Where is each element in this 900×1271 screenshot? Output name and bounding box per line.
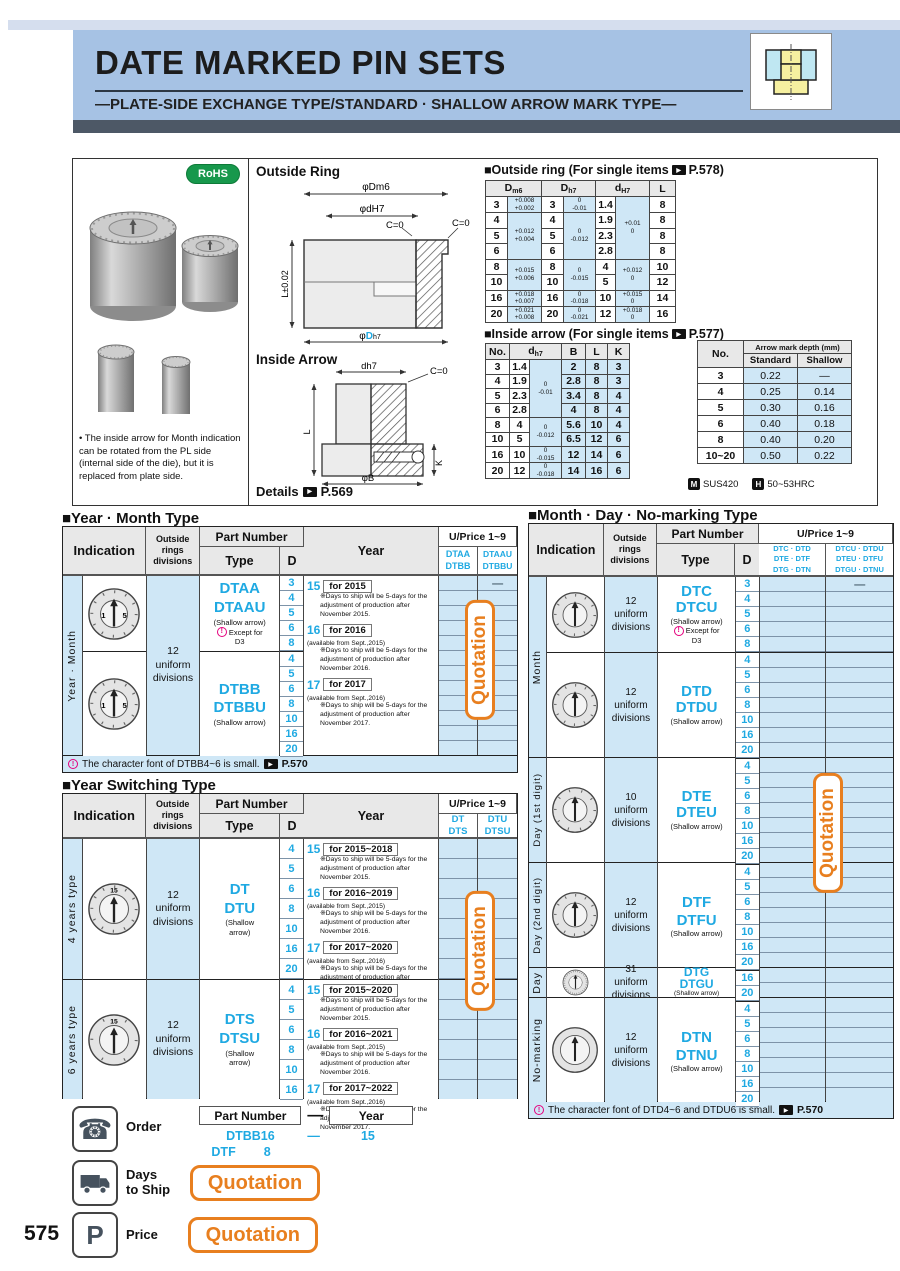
days-to-ship-row: Daysto Ship Quotation (72, 1160, 320, 1206)
d-value: 5 (280, 667, 303, 682)
details-page: P.569 (321, 484, 353, 499)
details-ref: Details ▶ P.569 (256, 484, 353, 499)
dim-ia-k: K (434, 460, 444, 466)
d-value: 3 (736, 577, 759, 592)
depth-row: 60.400.18 (698, 416, 852, 432)
dim-dm6: φDm6 (362, 182, 390, 193)
no-product-dash: — (478, 576, 517, 591)
d-value: 4 (736, 653, 759, 668)
no-product-dash: — (826, 577, 893, 592)
col-part-number: Part Number (200, 527, 304, 547)
d-value: 16 (736, 971, 759, 986)
year-switching-title: ■Year Switching Type (62, 777, 216, 794)
d-value: 4 (736, 759, 759, 774)
type-dts: DTSDTSU (Shallowarrow) (200, 979, 279, 1099)
d-value: 8 (736, 637, 759, 652)
page-ref-icon: ▶ (264, 759, 278, 769)
d-value: 10 (736, 1062, 759, 1077)
svg-text:15: 15 (111, 888, 119, 895)
outside-ring-label: Outside Ring (256, 164, 340, 179)
depth-row: 50.300.16 (698, 400, 852, 416)
svg-text:5: 5 (123, 701, 128, 710)
details-label: Details (256, 484, 299, 499)
d-value: 5 (280, 859, 303, 879)
d-value: 10 (736, 819, 759, 834)
dim-c0-b: C=0 (452, 218, 470, 229)
dim-l-tol: L±0.02 (280, 270, 290, 297)
type-dte: DTEDTEU (Shallow arrow) (658, 757, 735, 862)
svg-text:1: 1 (102, 701, 107, 710)
dim-ia-c0: C=0 (430, 366, 448, 377)
svg-text:5: 5 (123, 610, 128, 619)
d-value: 4 (736, 1002, 759, 1017)
material-note: MSUS420 H50~53HRC (688, 478, 815, 490)
d-value: 16 (736, 1077, 759, 1092)
year-entry: 17for 2017(available from Sept.,2016) ※D… (307, 678, 436, 728)
month-dial: 1 5 (83, 651, 146, 756)
dtc-dial (547, 577, 604, 652)
photo-note: • The inside arrow for Month indication … (79, 433, 245, 483)
phone-icon: ☎ (72, 1106, 118, 1152)
d-value: 10 (736, 713, 759, 728)
dim-ia-l: L (302, 429, 312, 434)
d-value: 20 (736, 986, 759, 1001)
page-number: 575 (24, 1222, 59, 1246)
price-row: P Price Quotation (72, 1212, 318, 1258)
dtn-dial (547, 997, 604, 1102)
dtg-dial (547, 967, 604, 997)
example-part-number: DTF (211, 1145, 235, 1159)
col-uprice: U/Price 1~9 (439, 527, 517, 547)
quotation-stamp: Quotation (810, 771, 846, 895)
pin-section-icon (750, 33, 832, 110)
d-value: 4 (736, 865, 759, 880)
year-entry: 16for 2016(available from Sept.,2015) ※D… (307, 623, 436, 673)
quotation-stamp: Quotation (462, 871, 498, 1031)
d-value: 6 (280, 621, 303, 636)
d-value: 5 (736, 774, 759, 789)
depth-row: 10~200.500.22 (698, 448, 852, 464)
order-row: ☎ Order Part Number — Year DTBB16 — 15 D… (72, 1106, 413, 1159)
d-value: 4 (736, 592, 759, 607)
d-value: 5 (736, 1017, 759, 1032)
col-price-2: DTCU · DTDUDTEU · DTFUDTGU · DTNU (826, 544, 893, 576)
d-value: 4 (280, 980, 303, 1000)
year-month-title: ■Year · Month Type (62, 510, 199, 527)
year-box: Year (329, 1106, 413, 1125)
example-year: 15 (326, 1129, 410, 1143)
d-value: 6 (736, 683, 759, 698)
d-value: 20 (736, 955, 759, 970)
caution-icon: ! (217, 627, 227, 637)
4years-dial: 15 (83, 839, 146, 979)
d-value: 10 (736, 925, 759, 940)
d-value: 8 (736, 1047, 759, 1062)
depth-row: 40.250.14 (698, 384, 852, 400)
d-value: 20 (280, 959, 303, 979)
svg-text:1: 1 (102, 610, 107, 619)
side-label-year-month: Year · Month (63, 576, 83, 755)
caution-icon: ! (674, 626, 684, 636)
d-value: 8 (736, 804, 759, 819)
d-value: 8 (280, 1040, 303, 1060)
caution-icon: ! (534, 1105, 544, 1115)
type-dtn: DTNDTNU (Shallow arrow) (658, 997, 735, 1102)
price-label: Price (126, 1228, 158, 1243)
days-to-ship-label: Daysto Ship (126, 1168, 170, 1198)
d-column: 34568 4568101620 4568101620 4568101620 1… (736, 577, 760, 1101)
col-year: Year (304, 527, 439, 575)
dim-c0-a: C=0 (386, 220, 404, 231)
material-m-icon: M (688, 478, 700, 490)
svg-text:15: 15 (111, 1018, 119, 1025)
dtf-dial (547, 862, 604, 967)
inside-arrow-table-title: ■Inside arrow (For single items ▶ P.577) (484, 327, 724, 341)
month-day-title: ■Month · Day · No-marking Type (528, 507, 758, 524)
d-value: 6 (736, 895, 759, 910)
d-value: 4 (280, 652, 303, 667)
inside-arrow-diagram: dh7 C=0 L K φB (256, 360, 478, 491)
type-dt: DTDTU (Shallowarrow) (200, 839, 279, 979)
d-value: 16 (280, 727, 303, 742)
d-value: 6 (280, 1020, 303, 1040)
outside-ring-table: Dm6 Dh7 dH7 L 3+0.008+0.002 30-0.01 1.4+… (485, 180, 676, 323)
catalog-page: DATE MARKED PIN SETS —PLATE-SIDE EXCHANG… (0, 0, 900, 1271)
d-value: 20 (736, 1092, 759, 1107)
d-value: 4 (280, 591, 303, 606)
d-value: 4 (280, 839, 303, 859)
example-part-number: DTBB16 (199, 1129, 301, 1143)
d-value: 20 (736, 743, 759, 758)
page-ref-icon: ▶ (779, 1105, 793, 1115)
hardness-h-icon: H (752, 478, 764, 490)
d-value: 8 (736, 698, 759, 713)
dim-dh7-small: φdH7 (360, 204, 385, 215)
d-value: 6 (280, 879, 303, 899)
type-dtc: DTCDTCU (Shallow arrow) !Except for D3 (658, 577, 735, 652)
outside-ring-table-title: ■Outside ring (For single items ▶ P.578) (484, 163, 724, 177)
side-label-4years: 4 years type (63, 839, 82, 979)
rings-divisions: 12uniformdivisions (147, 576, 201, 755)
page-ref-icon: ▶ (303, 487, 317, 497)
d-value: 20 (280, 742, 303, 757)
year-entry: 15for 2015 ※Days to ship will be 5-days … (307, 579, 436, 619)
d-value: 8 (280, 697, 303, 712)
dim-ia-dh7: dh7 (361, 361, 377, 372)
col-d: D (280, 547, 304, 575)
col-rings: Outsideringsdivisions (146, 527, 200, 575)
year-info-4years: 15for 2015~2018※Days to ship will be 5-d… (304, 839, 438, 979)
d-value: 6 (736, 789, 759, 804)
d-value: 16 (736, 834, 759, 849)
d-column: 4568101620 45681016 (280, 839, 304, 1098)
6years-dial: 15 (83, 979, 146, 1099)
d-value: 5 (280, 606, 303, 621)
side-label-nomarking: No-marking (529, 997, 546, 1102)
year-month-table: Indication Outsideringsdivisions Part Nu… (62, 526, 518, 773)
type-dtbb: DTBB DTBBU (Shallow arrow) (200, 651, 279, 756)
arrow-mark-depth-table: No.Arrow mark depth (mm) StandardShallow… (697, 340, 852, 464)
type-dtf: DTFDTFU (Shallow arrow) (658, 862, 735, 967)
d-value: 16 (736, 940, 759, 955)
d-value: 6 (736, 1032, 759, 1047)
dte-dial (547, 757, 604, 862)
part-number-box: Part Number (199, 1106, 301, 1125)
side-label-6years: 6 years type (63, 979, 82, 1099)
side-label-day: Day (529, 967, 546, 997)
product-photo (78, 180, 242, 430)
price-p-icon: P (72, 1212, 118, 1258)
d-value: 6 (280, 682, 303, 697)
type-dtaa: DTAA DTAAU (Shallow arrow) !Except for D… (200, 576, 279, 651)
dim-dh7-big: φDh7 (359, 331, 381, 342)
col-price-2: DTAAUDTBBU (478, 547, 517, 575)
year-dial: 1 5 (83, 576, 146, 651)
side-label-month: Month (529, 577, 546, 757)
caution-icon: ! (68, 759, 78, 769)
type-dtd: DTDDTDU (Shallow arrow) (658, 652, 735, 757)
d-value: 8 (736, 910, 759, 925)
year-switching-table: Indication Outsideringsdivisions Part Nu… (62, 793, 518, 1099)
year-info-6years: 15for 2015~2020※Days to ship will be 5-d… (304, 979, 438, 1099)
dim-ia-b: φB (362, 473, 375, 484)
d-value: 10 (280, 712, 303, 727)
side-label-day2: Day (2nd digit) (529, 862, 546, 967)
header-top-strip (8, 20, 900, 30)
d-value: 8 (280, 636, 303, 651)
d-value: 10 (280, 919, 303, 939)
d-value: 16 (280, 939, 303, 959)
col-price-1: DTAADTBB (439, 547, 478, 575)
d-value: 16 (736, 728, 759, 743)
inside-arrow-table: No. dh7 BLK 31.4 0-0.01 283 41.92.883 52… (485, 343, 630, 479)
col-price-1: DTC · DTDDTE · DTFDTG · DTN (759, 544, 826, 576)
d-value: 5 (736, 880, 759, 895)
d-value: 3 (280, 576, 303, 591)
d-value: 5 (280, 1000, 303, 1020)
d-value: 10 (280, 1060, 303, 1080)
d-value: 6 (736, 622, 759, 637)
type-dtg: DTGDTGU (Shallow arrow) (658, 967, 735, 997)
d-value: 20 (736, 849, 759, 864)
page-subtitle: —PLATE-SIDE EXCHANGE TYPE/STANDARD · SHA… (95, 96, 676, 113)
year-info: 15for 2015 ※Days to ship will be 5-days … (304, 576, 439, 755)
side-label-day1: Day (1st digit) (529, 757, 546, 862)
d-value: 5 (736, 607, 759, 622)
d-value: 5 (736, 668, 759, 683)
col-type: Type (200, 547, 280, 575)
photo-divider (248, 158, 249, 506)
d-value: 16 (280, 1080, 303, 1100)
quotation-stamp: Quotation (190, 1165, 320, 1201)
order-label: Order (126, 1120, 161, 1135)
page-ref-icon: ▶ (672, 165, 686, 175)
page-ref-icon: ▶ (672, 329, 686, 339)
col-indication: Indication (63, 527, 146, 575)
ym-footnote: ! The character font of DTBB4~6 is small… (63, 755, 517, 772)
dtd-dial (547, 652, 604, 757)
d-value: 8 (280, 899, 303, 919)
depth-row: 80.400.20 (698, 432, 852, 448)
title-rule (95, 90, 743, 92)
quotation-stamp: Quotation (188, 1217, 318, 1253)
truck-icon (72, 1160, 118, 1206)
header-bottom-bar (73, 120, 900, 133)
month-day-table: Indication Outsideringsdivisions Part Nu… (528, 523, 894, 1119)
d-column: 34568 4568101620 (280, 576, 304, 755)
page-title: DATE MARKED PIN SETS (95, 44, 506, 82)
outside-ring-diagram: φDm6 φdH7 C=0 C=0 L±0.02 φDh7 (252, 178, 480, 355)
depth-row: 30.22— (698, 368, 852, 384)
md-footnote: ! The character font of DTD4~6 and DTDU6… (529, 1101, 893, 1118)
quotation-stamp: Quotation (462, 598, 498, 722)
